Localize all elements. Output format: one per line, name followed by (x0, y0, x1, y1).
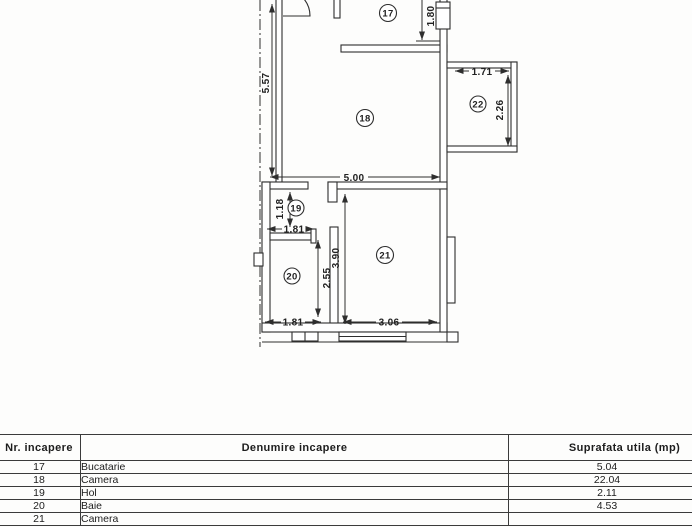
room-label-19: 19 (288, 200, 304, 216)
svg-text:22: 22 (472, 100, 483, 111)
window-top-right (436, 2, 450, 29)
svg-text:17: 17 (382, 9, 393, 20)
wall-entry-stub (334, 0, 340, 18)
svg-text:19: 19 (290, 204, 301, 215)
svg-text:1.81: 1.81 (283, 318, 304, 329)
wall-right-lower (440, 189, 447, 332)
room-label-21: 21 (377, 247, 394, 264)
header-suprafata-utila: Suprafata utila (mp) (509, 435, 692, 461)
scanned-floor-plan-document: 5.57 1.80 1.71 2.26 5.00 (0, 0, 692, 527)
table-row: 19 Hol 2.11 (0, 487, 692, 500)
svg-text:1.80: 1.80 (426, 6, 437, 27)
svg-text:1.71: 1.71 (472, 67, 493, 78)
svg-text:1.81: 1.81 (284, 225, 305, 236)
wall-room22-right (511, 62, 517, 152)
table-row: 18 Camera 22.04 (0, 474, 692, 487)
room-area: 2.11 (509, 487, 692, 500)
svg-text:3.90: 3.90 (331, 248, 342, 269)
svg-text:20: 20 (286, 272, 297, 283)
room-area: 5.04 (509, 461, 692, 474)
table-header-row: Nr. incapere Denumire incapere Suprafata… (0, 435, 692, 461)
floor-plan-drawing: 5.57 1.80 1.71 2.26 5.00 (0, 0, 692, 432)
window-bottom-right-end (447, 332, 458, 342)
svg-text:18: 18 (359, 114, 370, 125)
room-name: Bucatarie (81, 461, 509, 474)
svg-text:2.26: 2.26 (495, 100, 506, 121)
room-name: Camera (81, 474, 509, 487)
svg-text:5.00: 5.00 (344, 173, 365, 184)
room-number: 17 (0, 461, 81, 474)
svg-text:1.18: 1.18 (275, 199, 286, 220)
wall-niche (254, 253, 263, 266)
wall-left-upper (276, 0, 282, 184)
room-label-20: 20 (284, 268, 300, 284)
table-row: 20 Baie 4.53 (0, 500, 692, 513)
svg-text:21: 21 (379, 251, 391, 262)
room-area: 22.04 (509, 474, 692, 487)
room-schedule-table: Nr. incapere Denumire incapere Suprafata… (0, 434, 692, 526)
door-jamb-bath (311, 229, 316, 243)
room-label-22: 22 (470, 96, 486, 112)
room-label-17: 17 (380, 5, 397, 22)
dim-1-80: 1.80 (416, 0, 440, 41)
room-name: Hol (81, 487, 509, 500)
header-denumire-incapere: Denumire incapere (81, 435, 509, 461)
header-nr-incapere: Nr. incapere (0, 435, 81, 461)
room-area: 4.53 (509, 500, 692, 513)
dim-2-26: 2.26 (495, 75, 508, 146)
dim-5-57: 5.57 (261, 4, 272, 176)
room-number: 21 (0, 513, 81, 526)
window-room21-right (447, 237, 455, 303)
svg-text:3.06: 3.06 (379, 318, 400, 329)
wall-divider-17-18 (341, 45, 447, 52)
room-number: 18 (0, 474, 81, 487)
room-name: Baie (81, 500, 509, 513)
table-row: 17 Bucatarie 5.04 (0, 461, 692, 474)
room-label-18: 18 (357, 110, 374, 127)
table-row: 21 Camera (0, 513, 692, 526)
windows (262, 2, 458, 342)
wall-room22-bottom (447, 146, 517, 152)
room-area (509, 513, 692, 526)
room-name: Camera (81, 513, 509, 526)
wall-room21-hook (328, 182, 337, 202)
dim-1-71: 1.71 (455, 67, 509, 78)
svg-text:2.55: 2.55 (322, 268, 333, 289)
room-number: 20 (0, 500, 81, 513)
entry-door-arc (283, 0, 310, 16)
room-number: 19 (0, 487, 81, 500)
svg-text:5.57: 5.57 (261, 73, 272, 94)
